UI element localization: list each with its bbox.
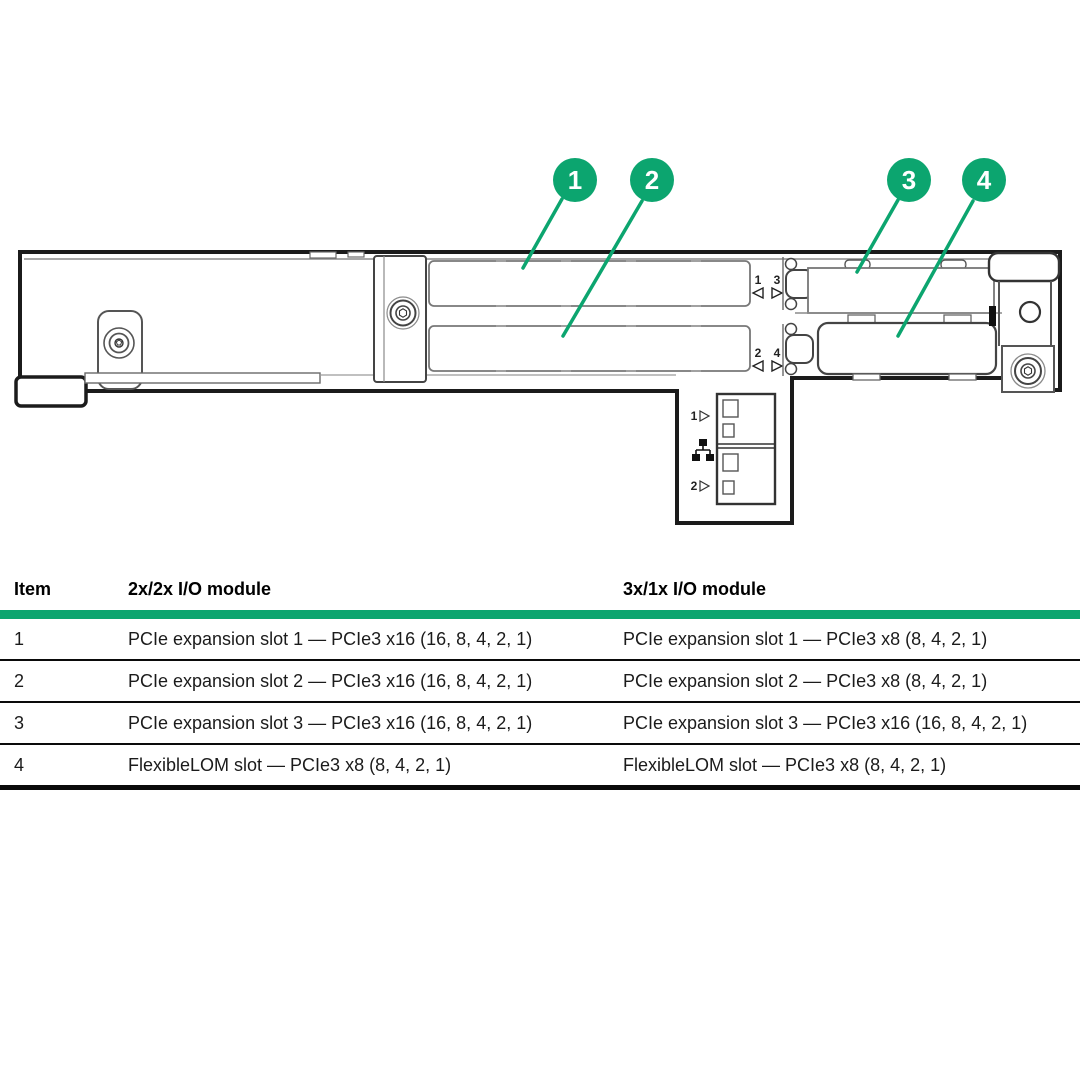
indicator-num-1: 1 bbox=[755, 273, 762, 287]
pcie-slot-1-blank bbox=[429, 261, 750, 306]
server-rear-diagram: 1 3 2 4 bbox=[0, 0, 1080, 560]
col-header-2x2x: 2x/2x I/O module bbox=[128, 577, 271, 601]
table-row: 1 PCIe expansion slot 1 — PCIe3 x16 (16,… bbox=[0, 619, 1080, 661]
indicator-num-4: 4 bbox=[774, 346, 781, 360]
triangle-right-icon bbox=[700, 411, 709, 421]
table-accent-bar bbox=[0, 610, 1080, 619]
item-cell: 4 bbox=[14, 745, 24, 785]
pcie-slot-2-blank bbox=[429, 326, 750, 371]
callout-4: 4 bbox=[962, 158, 1006, 202]
io-module-table: Item 2x/2x I/O module 3x/1x I/O module 1… bbox=[0, 577, 1080, 790]
module-2x2x-cell: FlexibleLOM slot — PCIe3 x8 (8, 4, 2, 1) bbox=[128, 745, 451, 785]
module-2x2x-cell: PCIe expansion slot 3 — PCIe3 x16 (16, 8… bbox=[128, 703, 532, 743]
module-3x1x-cell: PCIe expansion slot 2 — PCIe3 x8 (8, 4, … bbox=[623, 661, 987, 701]
module-3x1x-cell: PCIe expansion slot 1 — PCIe3 x8 (8, 4, … bbox=[623, 619, 987, 659]
svg-text:2: 2 bbox=[645, 165, 659, 195]
table-row: 3 PCIe expansion slot 3 — PCIe3 x16 (16,… bbox=[0, 703, 1080, 745]
triangle-right-icon bbox=[700, 481, 709, 491]
item-cell: 3 bbox=[14, 703, 24, 743]
indicator-num-3: 3 bbox=[774, 273, 781, 287]
callout-balloons: 1 2 3 4 bbox=[553, 158, 1006, 202]
nic-port-2-label: 2 bbox=[691, 479, 698, 493]
callout-1: 1 bbox=[553, 158, 597, 202]
callout-2: 2 bbox=[630, 158, 674, 202]
top-notch-1 bbox=[310, 252, 336, 258]
connector-lower bbox=[783, 324, 813, 377]
module-3x1x-cell: PCIe expansion slot 3 — PCIe3 x16 (16, 8… bbox=[623, 703, 1027, 743]
center-divider bbox=[374, 256, 426, 382]
top-notch-2 bbox=[348, 252, 364, 257]
table-row: 2 PCIe expansion slot 2 — PCIe3 x16 (16,… bbox=[0, 661, 1080, 703]
leader-line-1 bbox=[523, 199, 562, 268]
page: 1 3 2 4 bbox=[0, 0, 1080, 1080]
nic-port-labels: 1 2 bbox=[691, 409, 714, 493]
nic-ports bbox=[717, 394, 775, 504]
latch-notch bbox=[989, 306, 996, 326]
module-2x2x-cell: PCIe expansion slot 2 — PCIe3 x16 (16, 8… bbox=[128, 661, 532, 701]
table-header-row: Item 2x/2x I/O module 3x/1x I/O module bbox=[0, 577, 1080, 610]
svg-text:1: 1 bbox=[568, 165, 582, 195]
item-cell: 1 bbox=[14, 619, 24, 659]
module-3x1x-cell: FlexibleLOM slot — PCIe3 x8 (8, 4, 2, 1) bbox=[623, 745, 946, 785]
svg-text:4: 4 bbox=[977, 165, 992, 195]
table-row: 4 FlexibleLOM slot — PCIe3 x8 (8, 4, 2, … bbox=[0, 745, 1080, 790]
latch-hole bbox=[1020, 302, 1040, 322]
triangle-right-icon bbox=[772, 288, 782, 298]
slot-indicator-upper: 1 3 bbox=[753, 273, 782, 298]
svg-text:3: 3 bbox=[902, 165, 916, 195]
col-header-3x1x: 3x/1x I/O module bbox=[623, 577, 766, 601]
network-icon bbox=[692, 439, 714, 461]
leader-line-3 bbox=[857, 200, 898, 272]
flexiblelom-bay bbox=[818, 315, 996, 380]
module-2x2x-cell: PCIe expansion slot 1 — PCIe3 x16 (16, 8… bbox=[128, 619, 532, 659]
right-latch bbox=[989, 253, 1059, 392]
item-cell: 2 bbox=[14, 661, 24, 701]
triangle-left-icon bbox=[753, 361, 763, 371]
nic-port-1-label: 1 bbox=[691, 409, 698, 423]
indicator-num-2: 2 bbox=[755, 346, 762, 360]
triangle-right-icon bbox=[772, 361, 782, 371]
chassis-left-tab bbox=[16, 377, 86, 406]
pcie-slot-3-bay bbox=[795, 260, 1002, 313]
slot-indicator-lower: 2 4 bbox=[753, 346, 782, 371]
triangle-left-icon bbox=[753, 288, 763, 298]
callout-3: 3 bbox=[887, 158, 931, 202]
col-header-item: Item bbox=[14, 577, 51, 601]
